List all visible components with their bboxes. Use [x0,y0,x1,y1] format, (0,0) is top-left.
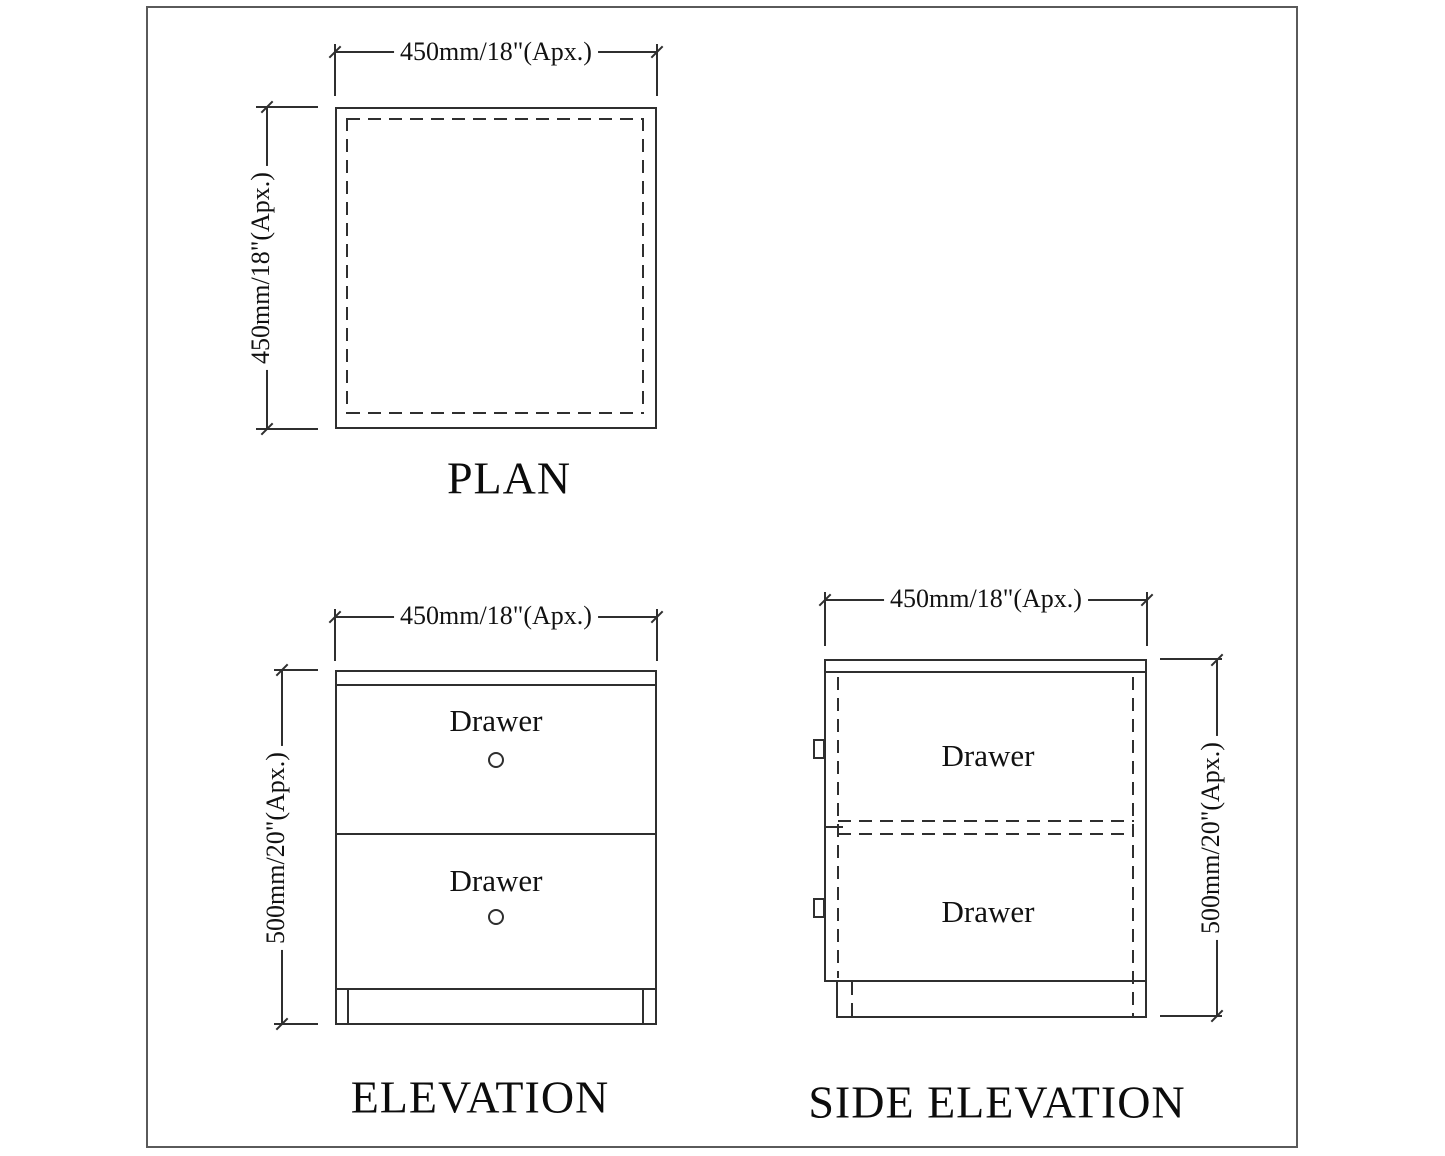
side-left-edge [824,659,826,982]
drawer-knob [488,752,504,768]
side-plinth-top-line [825,980,1147,982]
elevation-width-dim-text: 450mm/18"(Apx.) [394,601,598,631]
side-divider-stub-line [825,826,843,828]
plan-hidden-line-left [346,118,348,414]
side-hidden-line-divider-upper [838,820,1134,822]
drawer-handle [813,739,825,759]
side-hidden-line-back [1132,677,1134,1018]
elevation-title: ELEVATION [351,1071,610,1124]
drawer-label: Drawer [450,703,543,739]
elevation-top-band-line [335,684,657,686]
elevation-plinth-line [335,988,657,990]
side-top-line [825,659,1147,661]
side-width-dim-text: 450mm/18"(Apx.) [884,584,1088,614]
side-top-band-line [825,671,1147,673]
side-hidden-line-divider-lower [838,833,1134,835]
elevation-leg-line-right [642,990,644,1025]
elevation-height-dim-text: 500mm/20"(Apx.) [261,746,291,950]
side-bottom-line [837,1016,1147,1018]
drawer-label: Drawer [942,738,1035,774]
elevation-leg-line-left [347,990,349,1025]
extension-line [1160,658,1222,660]
side-elevation-title: SIDE ELEVATION [808,1076,1185,1129]
plan-depth-dim-text: 450mm/18"(Apx.) [246,166,276,370]
side-right-edge [1145,659,1147,1018]
sheet-border [146,6,1298,1148]
drawer-knob [488,909,504,925]
plan-title: PLAN [447,452,571,505]
side-height-dim-text: 500mm/20"(Apx.) [1196,736,1226,940]
plan-hidden-line-top [347,118,643,120]
drawing-sheet: 450mm/18"(Apx.) 450mm/18"(Apx.) PLAN Dra… [0,0,1445,1156]
drawer-label: Drawer [942,894,1035,930]
side-plinth-hidden-line [851,982,853,1018]
plan-outline [335,107,657,429]
elevation-drawer-divider-line [335,833,657,835]
plan-hidden-line-bottom [347,412,643,414]
drawer-label: Drawer [450,863,543,899]
side-plinth-face-line [836,982,838,1018]
plan-width-dim-text: 450mm/18"(Apx.) [394,37,598,67]
drawer-handle [813,898,825,918]
extension-line [1160,1015,1222,1017]
plan-hidden-line-right [642,118,644,414]
